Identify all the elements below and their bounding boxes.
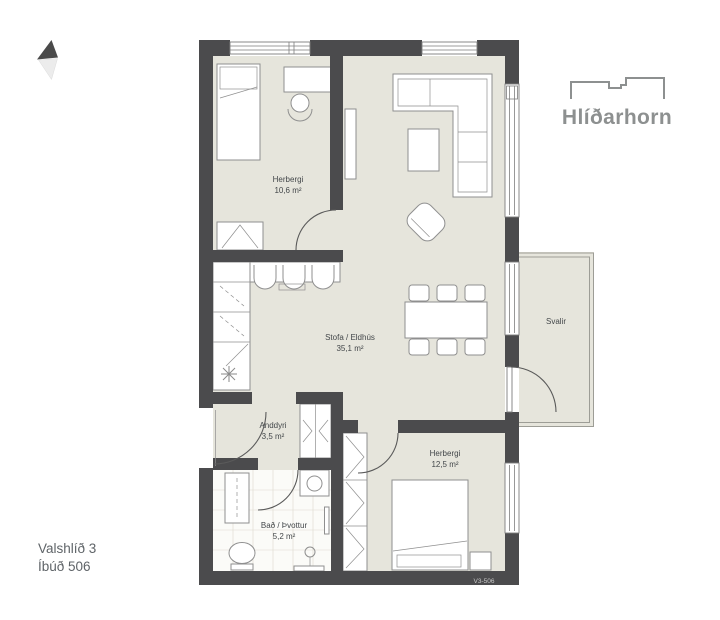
window-living-right bbox=[505, 84, 519, 217]
room-label-balcony-name: Svalir bbox=[546, 317, 566, 326]
unit-line: Íbúð 506 bbox=[38, 558, 96, 576]
plan-code-label: V3-506 bbox=[474, 578, 495, 585]
dining-chair bbox=[437, 339, 457, 355]
room-label-bath-area: 5,2 m² bbox=[273, 532, 296, 541]
cursor-arrow-icon bbox=[37, 40, 58, 80]
room-label-bath-name: Bað / Þvottur bbox=[261, 521, 308, 530]
room-label-living-area: 35,1 m² bbox=[336, 344, 363, 353]
building-logo: Hlíðarhorn bbox=[551, 74, 683, 130]
address-block: Valshlíð 3 Íbúð 506 bbox=[38, 540, 96, 576]
washing-machine bbox=[300, 470, 329, 496]
window-top-living bbox=[422, 42, 477, 54]
desk bbox=[284, 67, 333, 92]
room-label-hall-name: Anddyri bbox=[259, 421, 286, 430]
cooktop-symbol bbox=[221, 366, 237, 382]
dining-chair bbox=[465, 339, 485, 355]
floor-plan-page: Herbergi 10,6 m² Stofa / Eldhús 35,1 m² … bbox=[0, 0, 720, 620]
wardrobe-bedroom1 bbox=[217, 222, 263, 250]
logo-text: Hlíðarhorn bbox=[551, 106, 683, 130]
bathroom-vanity bbox=[225, 473, 249, 523]
hall-closet bbox=[300, 404, 331, 458]
window-bedroom2 bbox=[505, 463, 519, 533]
tv-sideboard bbox=[345, 109, 356, 179]
dining-table bbox=[405, 302, 487, 338]
double-bed bbox=[392, 480, 468, 570]
room-label-bedroom1-area: 10,6 m² bbox=[274, 186, 301, 195]
single-bed bbox=[217, 64, 260, 160]
wardrobe-bedroom2 bbox=[343, 433, 367, 571]
balcony-floor bbox=[519, 252, 594, 427]
toilet bbox=[229, 543, 255, 571]
window-balcony bbox=[505, 262, 519, 335]
dining-chair bbox=[437, 285, 457, 301]
dining-chair bbox=[409, 285, 429, 301]
kitchen-counter bbox=[213, 262, 250, 390]
room-label-living-name: Stofa / Eldhús bbox=[325, 333, 375, 342]
room-label-hall-area: 3,5 m² bbox=[262, 432, 285, 441]
address-line: Valshlíð 3 bbox=[38, 540, 96, 558]
room-label-bedroom1-name: Herbergi bbox=[273, 175, 304, 184]
building-outline-icon bbox=[565, 74, 669, 100]
bar-stool bbox=[312, 265, 334, 289]
room-label-bedroom2-name: Herbergi bbox=[430, 449, 461, 458]
kitchen-peninsula bbox=[250, 262, 340, 290]
dining-set bbox=[405, 285, 487, 355]
window-top-bedroom1 bbox=[230, 42, 310, 54]
nightstand bbox=[470, 552, 491, 570]
dining-chair bbox=[409, 339, 429, 355]
coffee-table bbox=[408, 129, 439, 171]
bar-stool bbox=[283, 265, 305, 289]
dining-chair bbox=[465, 285, 485, 301]
room-label-bedroom2-area: 12,5 m² bbox=[431, 460, 458, 469]
mirror bbox=[325, 507, 330, 534]
bar-stool bbox=[254, 265, 276, 289]
